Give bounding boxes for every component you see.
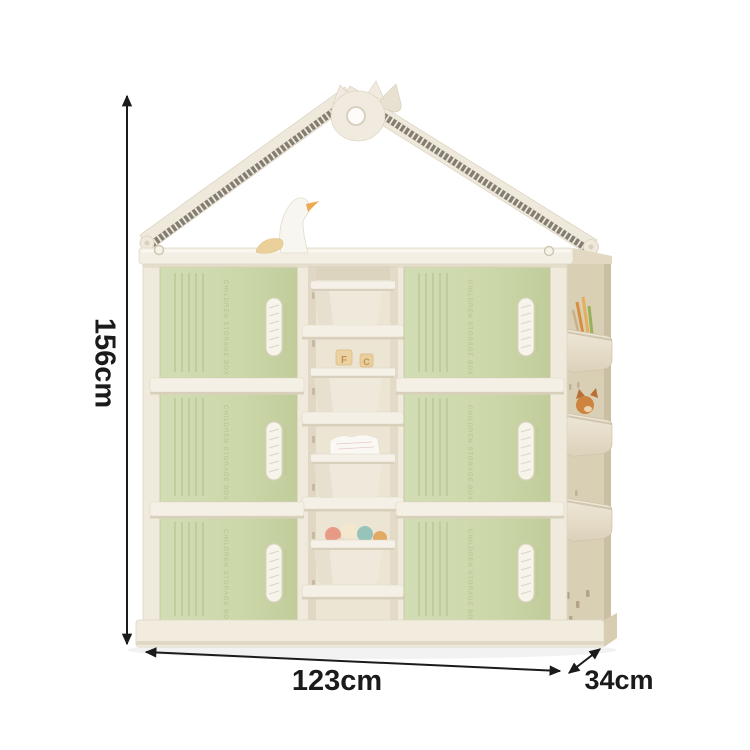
door-embossed-text: CHILDREN STORAGE BOX	[222, 280, 228, 376]
cabinet-door-right-3: CHILDREN STORAGE BOX	[404, 516, 550, 625]
door-embossed-text: CHILDREN STORAGE BOX	[222, 529, 228, 625]
cabinet-door-right-1: CHILDREN STORAGE BOX	[404, 267, 550, 378]
roof-peak-bird-ornament-icon	[331, 81, 401, 141]
cabinet-door-right-2: CHILDREN STORAGE BOX	[404, 392, 550, 502]
cabinet-door-left-1: CHILDREN STORAGE BOX	[160, 267, 297, 378]
letter-block-c: C	[360, 354, 373, 367]
door-embossed-text: CHILDREN STORAGE BOX	[222, 405, 228, 501]
depth-dimension-label: 34cm	[584, 665, 653, 695]
block-letter-f: F	[341, 355, 347, 366]
cabinet-illustration: F C	[0, 0, 750, 750]
side-pocket-middle	[566, 414, 612, 457]
door-embossed-text: CHILDREN STORAGE BOX	[466, 280, 472, 376]
roof-pivot-left	[155, 246, 164, 255]
roof	[140, 81, 599, 255]
door-embossed-text: CHILDREN STORAGE BOX	[466, 529, 472, 625]
product-dimension-image: F C	[0, 0, 750, 750]
block-letter-c: C	[363, 357, 370, 367]
cabinet-door-left-2: CHILDREN STORAGE BOX	[160, 392, 297, 502]
side-pocket-top	[566, 330, 612, 373]
roof-pivot-right	[545, 247, 554, 256]
tissue-item	[330, 435, 380, 455]
width-dimension-label: 123cm	[292, 665, 382, 697]
height-dimension-label: 156cm	[88, 318, 120, 408]
letter-block-f: F	[336, 350, 352, 366]
side-pocket-bottom	[566, 499, 612, 542]
door-embossed-text: CHILDREN STORAGE BOX	[466, 405, 472, 501]
cabinet-door-left-3: CHILDREN STORAGE BOX	[160, 516, 297, 625]
duck-figurine	[280, 198, 319, 253]
cabinet-top-shelf	[139, 246, 612, 269]
